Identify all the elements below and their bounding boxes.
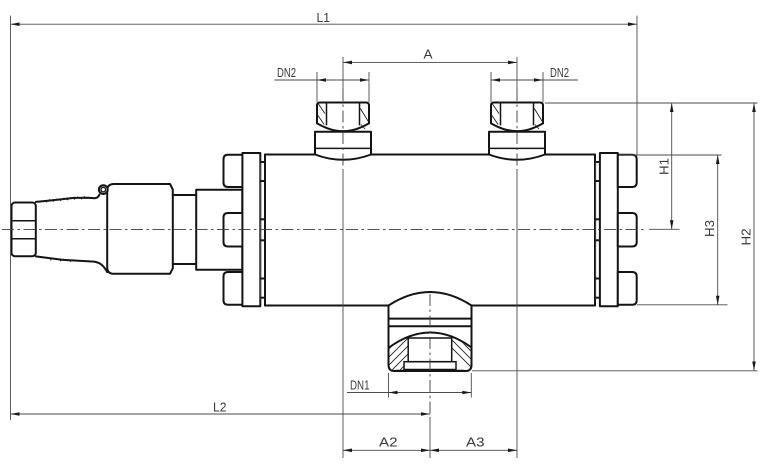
svg-text:H2: H2 <box>739 229 754 246</box>
svg-text:H3: H3 <box>702 220 717 237</box>
svg-text:L2: L2 <box>213 400 227 415</box>
svg-text:H1: H1 <box>657 158 672 175</box>
svg-text:DN2: DN2 <box>277 65 296 80</box>
svg-text:DN1: DN1 <box>350 377 370 392</box>
svg-text:A: A <box>424 47 433 62</box>
svg-text:A3: A3 <box>466 435 485 450</box>
svg-text:DN2: DN2 <box>550 65 569 80</box>
svg-text:A2: A2 <box>379 435 398 450</box>
svg-text:L1: L1 <box>317 10 331 25</box>
